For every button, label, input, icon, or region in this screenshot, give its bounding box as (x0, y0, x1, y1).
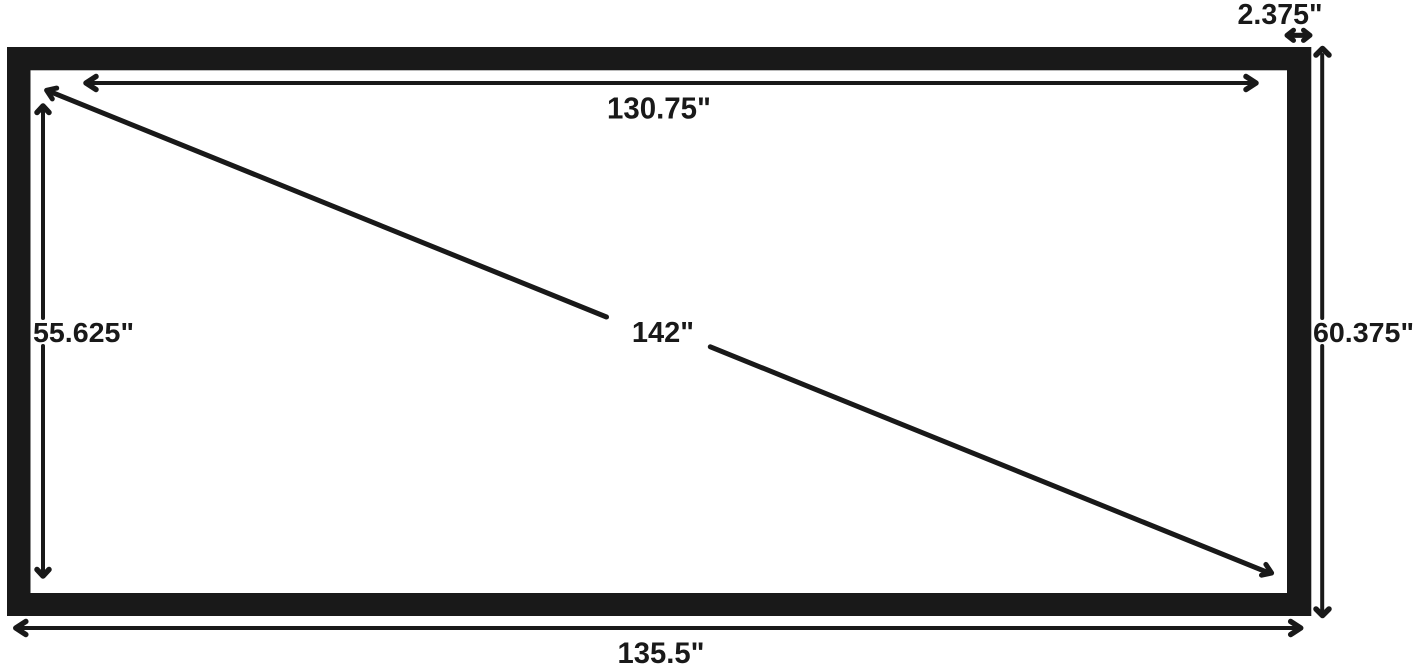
svg-text:60.375": 60.375" (1313, 317, 1414, 348)
svg-text:135.5": 135.5" (618, 637, 705, 668)
svg-text:142": 142" (632, 317, 694, 349)
svg-text:130.75": 130.75" (607, 91, 711, 126)
svg-text:55.625": 55.625" (33, 317, 134, 348)
svg-text:2.375": 2.375" (1238, 0, 1323, 31)
